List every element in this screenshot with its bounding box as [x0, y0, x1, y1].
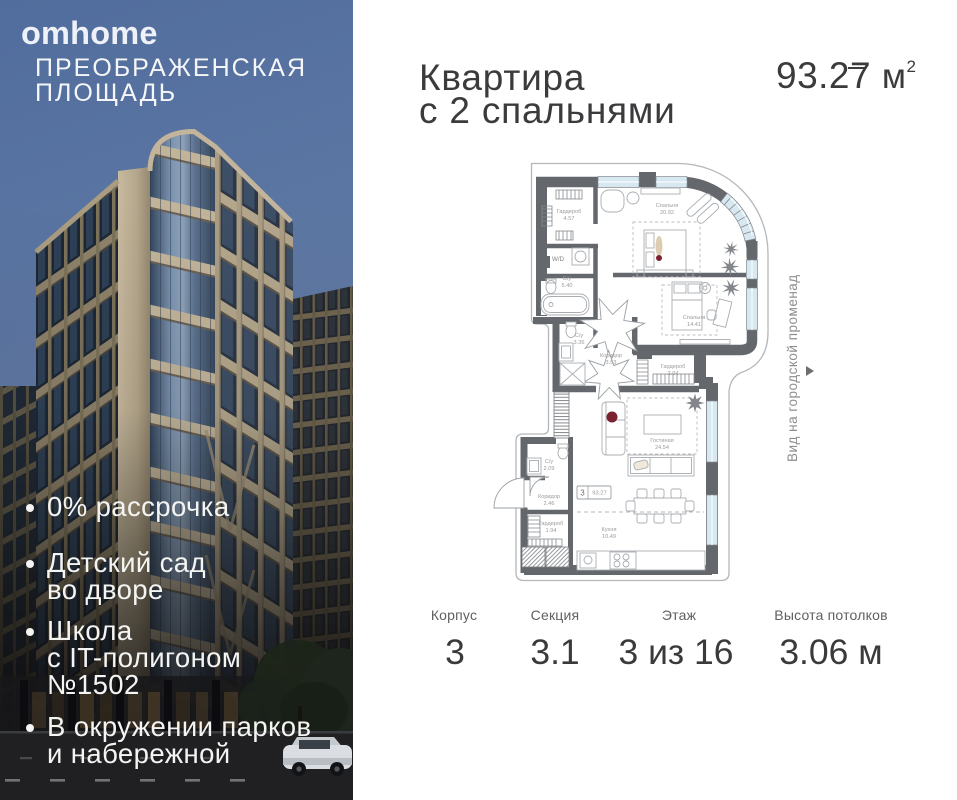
svg-text:4.57: 4.57 [564, 216, 575, 222]
svg-text:Кухня: Кухня [602, 527, 617, 533]
svg-text:Коридор: Коридор [600, 353, 622, 359]
svg-text:2.46: 2.46 [544, 501, 555, 507]
svg-text:20.92: 20.92 [660, 210, 674, 216]
svg-text:3.53: 3.53 [606, 360, 617, 366]
svg-text:С/у: С/у [563, 276, 572, 282]
svg-text:Коридор: Коридор [538, 494, 560, 500]
svg-text:Спальня: Спальня [683, 315, 705, 321]
svg-text:3: 3 [580, 489, 585, 498]
svg-text:2.09: 2.09 [544, 466, 555, 472]
svg-text:14.41: 14.41 [687, 322, 701, 328]
svg-text:Гардероб: Гардероб [557, 209, 582, 215]
svg-text:С/у: С/у [545, 459, 554, 465]
svg-text:1.94: 1.94 [546, 528, 557, 534]
svg-text:С/у: С/у [575, 333, 584, 339]
svg-text:Гостиная: Гостиная [650, 438, 673, 444]
svg-text:Гардероб: Гардероб [661, 364, 686, 370]
svg-text:93.27: 93.27 [592, 491, 607, 497]
svg-text:2.04: 2.04 [668, 371, 679, 377]
svg-text:24.54: 24.54 [655, 445, 669, 451]
svg-text:Спальня: Спальня [656, 203, 678, 209]
svg-text:5.40: 5.40 [562, 283, 573, 289]
svg-text:10.49: 10.49 [602, 534, 616, 540]
svg-text:3.36: 3.36 [574, 340, 585, 346]
svg-text:Гардероб: Гардероб [539, 521, 564, 527]
svg-text:W/D: W/D [552, 256, 565, 263]
